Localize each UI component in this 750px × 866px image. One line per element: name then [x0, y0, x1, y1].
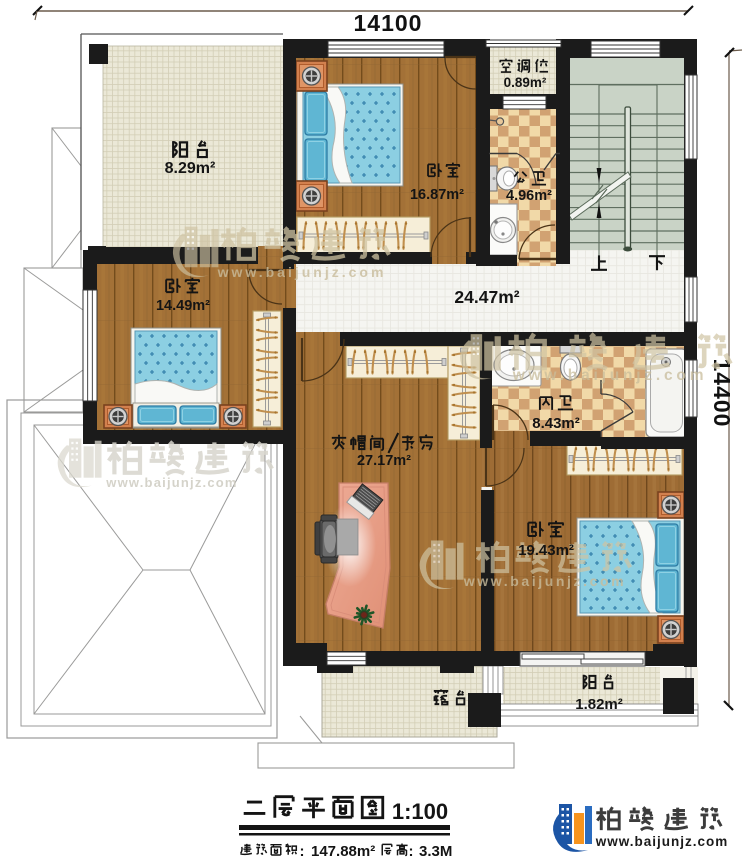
svg-text:www.baijunjz.com: www.baijunjz.com — [217, 264, 387, 280]
svg-text:16.87m²: 16.87m² — [410, 187, 464, 203]
svg-text:14.49m²: 14.49m² — [156, 298, 210, 314]
svg-text:1:100: 1:100 — [392, 799, 448, 824]
svg-text:14100: 14100 — [354, 10, 423, 36]
svg-text:24.47m²: 24.47m² — [454, 287, 519, 307]
svg-text:www.baijunjz.com: www.baijunjz.com — [105, 475, 237, 490]
svg-text:0.89m²: 0.89m² — [504, 75, 547, 90]
svg-text:8.29m²: 8.29m² — [165, 160, 216, 177]
svg-text:19.43m²: 19.43m² — [518, 542, 574, 559]
svg-text:www.baijunjz.com: www.baijunjz.com — [463, 573, 626, 589]
svg-text:1.82m²: 1.82m² — [575, 696, 623, 713]
svg-text:3.3M: 3.3M — [419, 843, 452, 860]
svg-text::: : — [409, 843, 414, 860]
svg-text:8.43m²: 8.43m² — [532, 415, 580, 432]
svg-text::: : — [300, 843, 305, 860]
svg-text:27.17m²: 27.17m² — [357, 453, 411, 469]
svg-text:14400: 14400 — [709, 359, 735, 428]
svg-text:www.baijunjz.com: www.baijunjz.com — [595, 834, 729, 849]
svg-text:147.88m²: 147.88m² — [311, 843, 375, 860]
svg-text:4.96m²: 4.96m² — [506, 188, 552, 204]
svg-text:www.baijunjz.com: www.baijunjz.com — [512, 367, 708, 384]
